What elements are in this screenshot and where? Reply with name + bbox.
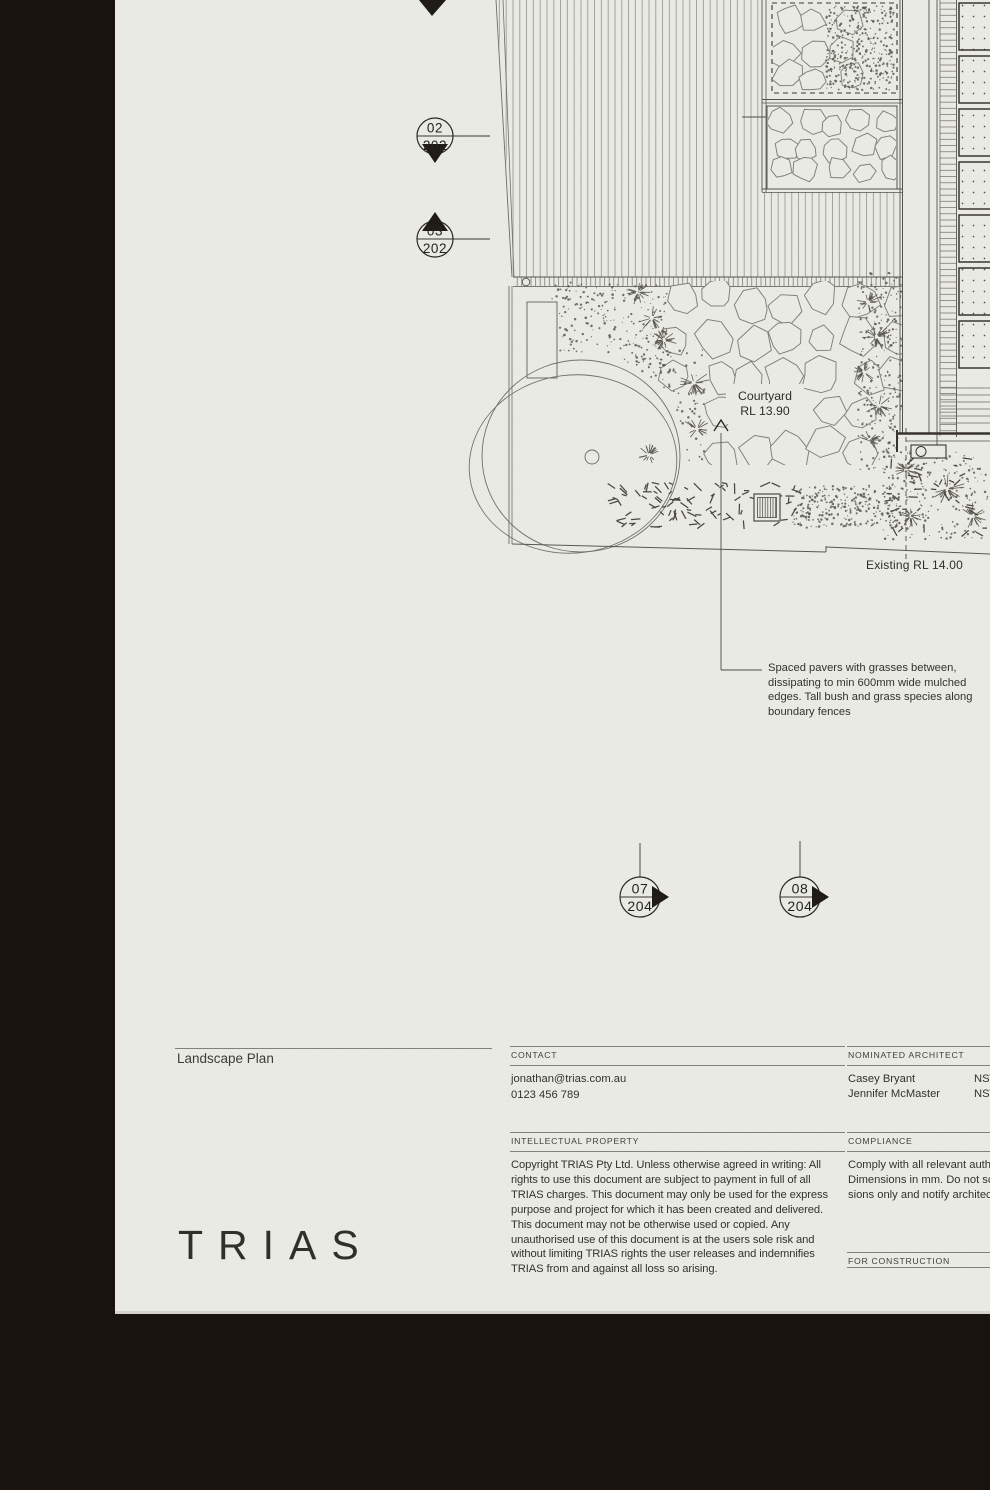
section-marker: 07204 xyxy=(620,843,669,917)
architect-rows: Casey Bryant NSW Jennifer McMaster NSW xyxy=(848,1072,990,1102)
ip-body: Copyright TRIAS Pty Ltd. Unless otherwis… xyxy=(511,1158,845,1277)
contact-phone: 0123 456 789 xyxy=(511,1088,579,1103)
architect-registration: NSW xyxy=(974,1087,990,1102)
status-rule-top xyxy=(847,1252,990,1253)
section-marker-number: 08 xyxy=(792,881,809,897)
architect-rule-top xyxy=(847,1046,990,1047)
contact-email: jonathan@trias.com.au xyxy=(511,1072,626,1087)
section-marker-number: 02 xyxy=(427,121,443,136)
drain-grate xyxy=(754,494,780,521)
status-rule-bottom xyxy=(847,1267,990,1268)
courtyard-label: Courtyard RL 13.90 xyxy=(738,389,792,419)
architect-row: Casey Bryant NSW xyxy=(848,1072,990,1087)
annotation-line: edges. Tall bush and grass species along xyxy=(768,690,980,705)
compliance-heading: COMPLIANCE xyxy=(848,1136,912,1146)
compliance-line: Comply with all relevant author xyxy=(848,1158,990,1173)
building-roof-edge xyxy=(897,0,990,458)
courtyard-rl-value: RL 13.90 xyxy=(738,404,792,419)
trias-logo: TRIAS xyxy=(178,1222,374,1269)
ip-rule-bottom xyxy=(510,1151,845,1152)
architect-rule-bottom xyxy=(847,1065,990,1066)
section-marker: 08204 xyxy=(780,841,829,917)
landscape-plan-drawing: 02202032020720408204 xyxy=(115,0,990,940)
contact-heading: CONTACT xyxy=(511,1050,557,1060)
architect-name: Casey Bryant xyxy=(848,1073,915,1085)
ip-heading: INTELLECTUAL PROPERTY xyxy=(511,1136,639,1146)
contact-rule-top xyxy=(510,1046,845,1047)
compliance-text: Comply with all relevant author Dimensio… xyxy=(848,1158,990,1204)
architect-registration: NSW xyxy=(974,1072,990,1087)
compliance-rule-top xyxy=(847,1132,990,1133)
existing-rl-label: Existing RL 14.00 xyxy=(866,558,963,572)
ip-rule-top xyxy=(510,1132,845,1133)
contact-rule-bottom xyxy=(510,1065,845,1066)
section-sheet-number: 204 xyxy=(787,898,812,914)
pavers-annotation: Spaced pavers with grasses between, diss… xyxy=(768,661,980,720)
compliance-rule-bottom xyxy=(847,1151,990,1152)
crazy-paving-band xyxy=(766,107,902,182)
section-arrow-icon xyxy=(812,886,829,908)
compliance-line: Dimensions in mm. Do not scal xyxy=(848,1173,990,1188)
annotation-line: dissipating to min 600mm wide mulched xyxy=(768,676,980,691)
drawing-sheet: 02202032020720408204 Courtyard RL 13.90 … xyxy=(115,0,990,1314)
section-marker-number: 03 xyxy=(427,224,443,239)
section-arrow-icon xyxy=(652,886,669,908)
annotation-line: Spaced pavers with grasses between, xyxy=(768,661,980,676)
courtyard-label-line1: Courtyard xyxy=(738,389,792,404)
architect-name: Jennifer McMaster xyxy=(848,1088,940,1100)
section-sheet-number: 202 xyxy=(423,241,447,256)
title-rule xyxy=(175,1048,492,1049)
section-sheet-number: 204 xyxy=(627,898,652,914)
screenshot-root: { "sheet": { "logo": "TRIAS", "title": "… xyxy=(0,0,990,1490)
annotation-line: boundary fences xyxy=(768,705,980,720)
section-arrow-icon xyxy=(419,0,446,16)
architect-heading: NOMINATED ARCHITECT xyxy=(848,1050,964,1060)
compliance-line: sions only and notify architect i xyxy=(848,1188,990,1203)
status-heading: FOR CONSTRUCTION xyxy=(848,1256,950,1266)
section-marker-number: 07 xyxy=(632,881,649,897)
architect-row: Jennifer McMaster NSW xyxy=(848,1087,990,1102)
sheet-title: Landscape Plan xyxy=(177,1051,274,1066)
tree-canopy xyxy=(459,302,687,565)
section-marker: 02202 xyxy=(417,118,490,163)
section-sheet-number: 202 xyxy=(423,138,447,153)
stone-garden-bed xyxy=(769,5,863,90)
planter-box xyxy=(527,302,557,378)
section-marker: 03202 xyxy=(417,212,490,257)
